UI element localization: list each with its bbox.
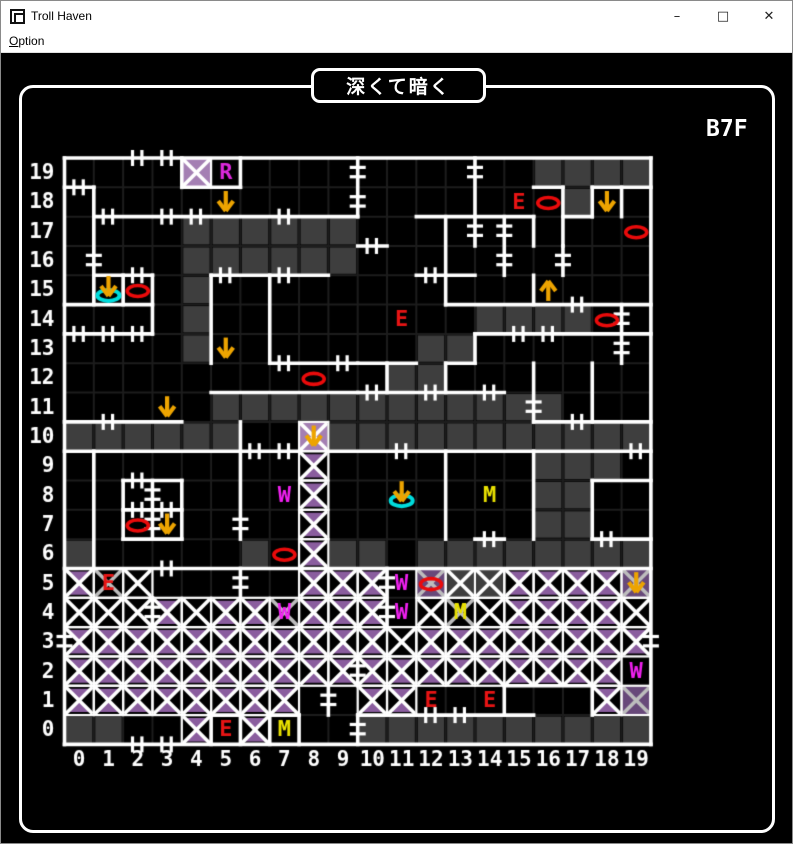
maximize-button[interactable]: □: [700, 1, 746, 31]
map-title-box: 深くて暗く: [311, 68, 486, 103]
dungeon-map-canvas: [1, 53, 793, 844]
app-icon: [10, 9, 25, 24]
title-bar: Troll Haven – □ ✕: [1, 1, 792, 31]
minimize-button[interactable]: –: [654, 1, 700, 31]
menu-item-option[interactable]: Option: [1, 31, 52, 51]
map-view: 深くて暗く B7F: [1, 53, 793, 844]
floor-label: B7F: [706, 116, 748, 142]
app-window: Troll Haven – □ ✕ Option 深くて暗く B7F: [0, 0, 793, 844]
menu-bar: Option: [1, 31, 792, 53]
map-title: 深くて暗く: [346, 72, 450, 99]
window-title: Troll Haven: [31, 9, 654, 23]
close-button[interactable]: ✕: [746, 1, 792, 31]
